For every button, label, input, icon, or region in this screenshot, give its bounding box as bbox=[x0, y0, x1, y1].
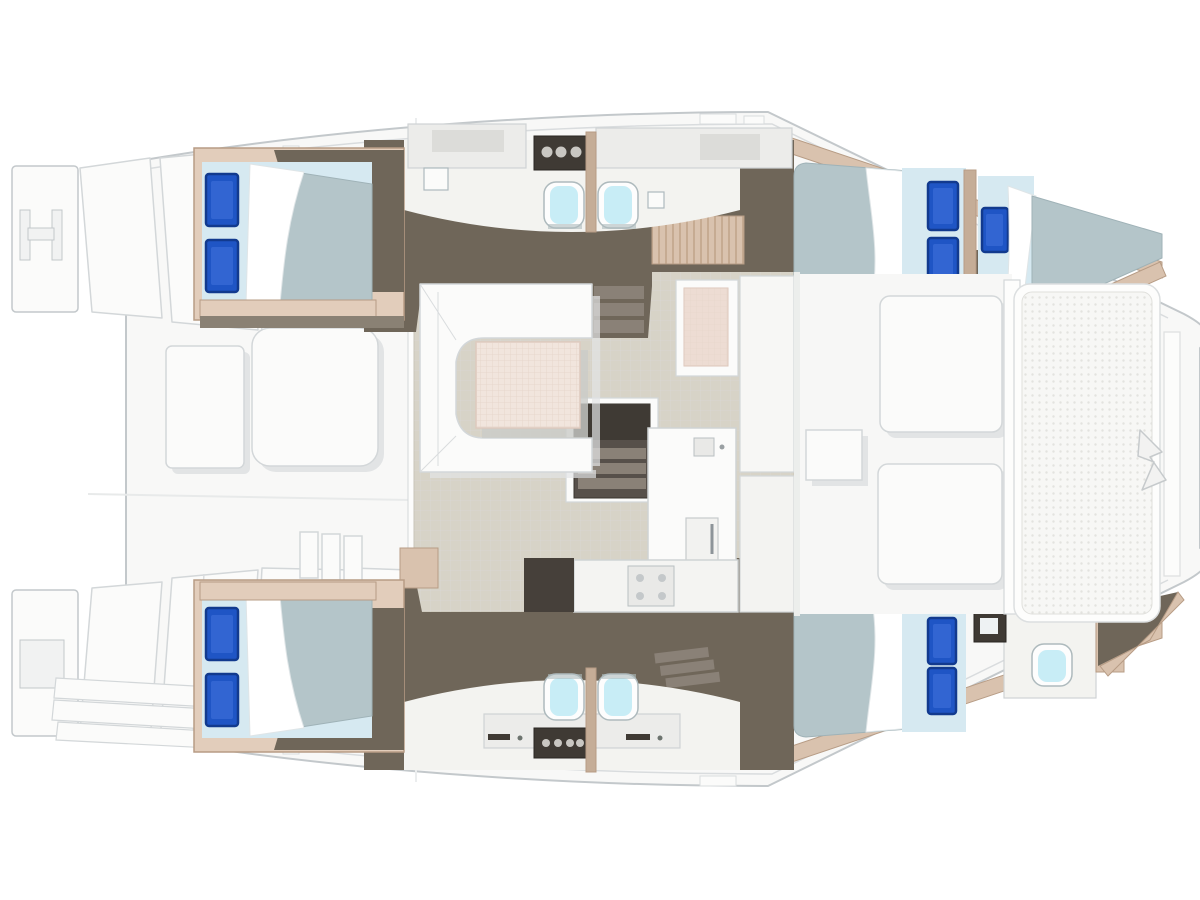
galley-aft-counter bbox=[524, 558, 738, 612]
toilet bbox=[544, 182, 584, 229]
pillow bbox=[206, 174, 238, 226]
nav-seat bbox=[676, 280, 738, 376]
port-heads-sink-unit bbox=[534, 136, 588, 170]
galley-faucet bbox=[720, 445, 725, 450]
pillow bbox=[928, 182, 958, 230]
swim-platform-port bbox=[12, 166, 78, 312]
cabin-wardrobe bbox=[370, 608, 404, 728]
cabin-shelf bbox=[200, 300, 376, 318]
stove-burner bbox=[658, 592, 666, 600]
salon-cabinet bbox=[740, 276, 794, 472]
toilet bbox=[1032, 644, 1072, 686]
cockpit-bench bbox=[880, 296, 1008, 438]
toilet bbox=[544, 674, 584, 720]
cabin-aft-port bbox=[194, 148, 404, 328]
cockpit-bulkhead bbox=[794, 272, 800, 616]
port-heads-vanity-right bbox=[596, 128, 792, 168]
galley-counter bbox=[648, 428, 736, 568]
salon-table bbox=[476, 342, 588, 438]
port-heads-hatch bbox=[648, 192, 664, 208]
port-shower-drain bbox=[424, 168, 448, 190]
starboard-heads-divider-wall bbox=[586, 668, 596, 772]
galley-stove bbox=[628, 566, 674, 606]
pillow bbox=[206, 608, 238, 660]
pillow bbox=[982, 208, 1008, 252]
port-heads-divider-wall bbox=[586, 132, 596, 232]
aft-cockpit-table bbox=[166, 346, 250, 474]
salon-door bbox=[740, 476, 794, 612]
cabin-shelf bbox=[200, 582, 376, 600]
aft-cockpit-seat bbox=[252, 328, 384, 472]
platform-cutout-bar bbox=[28, 228, 54, 240]
cabin-wardrobe bbox=[370, 172, 404, 292]
cockpit-helm-box bbox=[806, 430, 868, 486]
toilet bbox=[598, 182, 638, 229]
bow-head-sink-unit bbox=[974, 612, 1006, 642]
stove-burner bbox=[636, 592, 644, 600]
starboard-heads-sink-unit bbox=[534, 728, 588, 758]
port-heads-vanity-left bbox=[408, 124, 526, 168]
trampoline-net bbox=[1022, 292, 1152, 614]
port-companionway-stairs bbox=[594, 286, 644, 333]
galley-sink bbox=[694, 438, 714, 456]
catamaran-floorplan bbox=[0, 0, 1200, 900]
toilet bbox=[598, 674, 638, 720]
pillow bbox=[206, 674, 238, 726]
pillow bbox=[206, 240, 238, 292]
aft-deck-steps-mid bbox=[300, 532, 362, 582]
bow-crossbeam bbox=[1164, 332, 1180, 576]
stove-burner bbox=[636, 574, 644, 582]
galley-dark-cabinet bbox=[524, 558, 574, 612]
pillow bbox=[928, 618, 956, 664]
cabin-step-trim bbox=[200, 316, 404, 328]
trampoline bbox=[1014, 284, 1180, 622]
storage-box bbox=[400, 548, 438, 588]
pillow bbox=[928, 668, 956, 714]
cockpit-bench bbox=[878, 464, 1008, 590]
forward-cockpit bbox=[794, 272, 1020, 616]
stove-burner bbox=[658, 574, 666, 582]
cabin-aft-starboard bbox=[194, 580, 404, 752]
